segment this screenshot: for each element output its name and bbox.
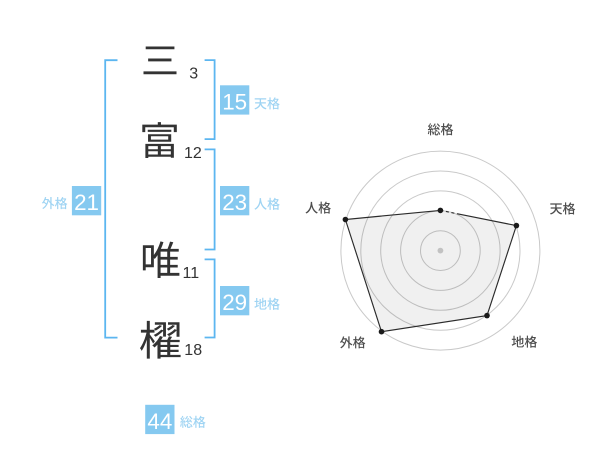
svg-text:44: 44 (147, 409, 172, 434)
svg-text:15: 15 (222, 89, 247, 114)
svg-text:12: 12 (184, 145, 202, 162)
svg-text:18: 18 (184, 342, 202, 359)
svg-text:29: 29 (222, 290, 247, 315)
svg-text:11: 11 (183, 265, 200, 282)
svg-text:23: 23 (222, 190, 247, 215)
svg-text:3: 3 (189, 65, 198, 82)
svg-text:21: 21 (74, 190, 99, 215)
